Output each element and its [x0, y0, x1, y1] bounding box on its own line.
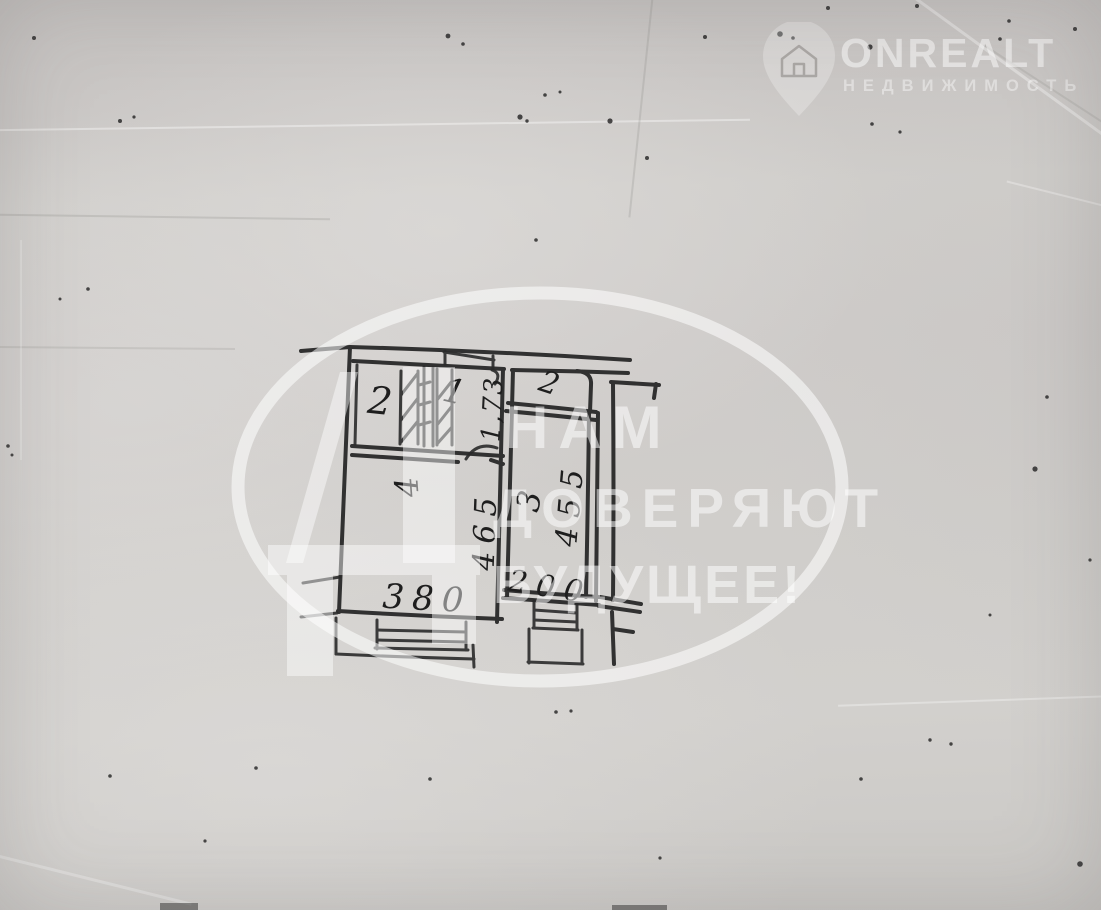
photographed-floor-plan: 2 1 2 4 3 1,73 465 455 380 200 НАМ ДОВЕР… — [0, 0, 1101, 910]
room-label-4-main: 4 — [390, 476, 423, 499]
plan-balcony — [336, 618, 474, 667]
dimension-corridor-depth: 1,73 — [478, 375, 507, 442]
dimension-main-room-width: 380 — [382, 580, 473, 619]
dimension-right-room-depth: 455 — [552, 458, 589, 548]
dimension-main-room-depth: 465 — [470, 489, 503, 571]
dust-specks — [6, 4, 1091, 910]
plan-entrance-steps — [528, 601, 583, 664]
room-label-2-top-left: 2 — [366, 381, 394, 421]
floor-plan-drawing — [0, 0, 1101, 910]
